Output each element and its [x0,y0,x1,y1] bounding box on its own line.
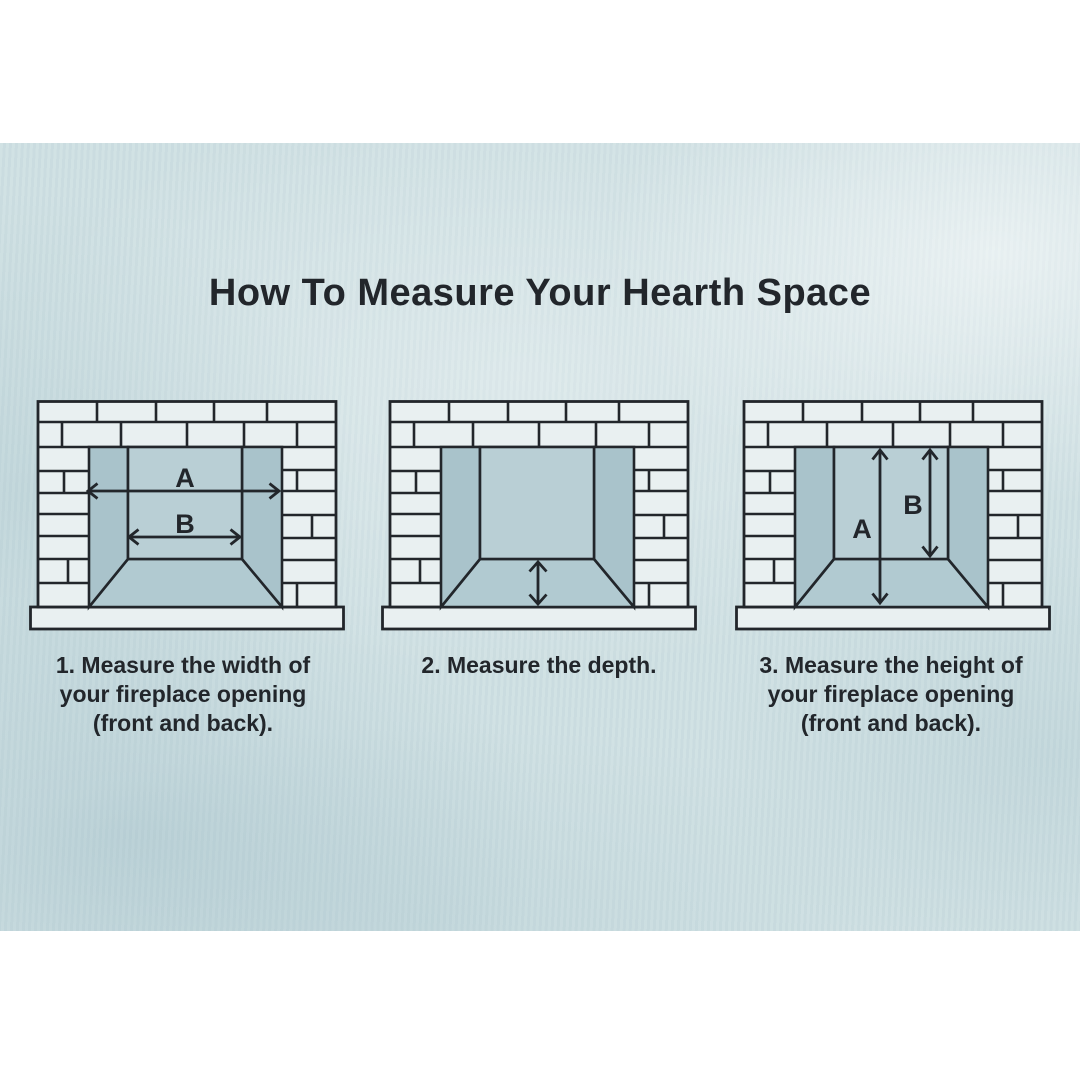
label-a: A [852,514,872,544]
caption-step-2: 2. Measure the depth. [414,651,664,680]
label-b: B [903,490,923,520]
diagram-measure-width: A B [29,400,345,632]
label-b: B [175,509,195,539]
caption-line: (front and back). [93,709,273,738]
caption-line: 3. Measure the height of [759,651,1022,680]
label-a: A [175,463,195,493]
caption-line: (front and back). [801,709,981,738]
diagram-measure-depth [381,400,697,632]
page-title: How To Measure Your Hearth Space [0,272,1080,314]
caption-line: your fireplace opening [60,680,307,709]
caption-line: your fireplace opening [768,680,1015,709]
caption-step-1: 1. Measure the width of your fireplace o… [58,651,308,738]
diagram-measure-height: A B [735,400,1051,632]
caption-line: 1. Measure the width of [56,651,310,680]
infographic-canvas: How To Measure Your Hearth Space [0,0,1080,1080]
caption-step-3: 3. Measure the height of your fireplace … [766,651,1016,738]
caption-line: 2. Measure the depth. [421,651,656,680]
